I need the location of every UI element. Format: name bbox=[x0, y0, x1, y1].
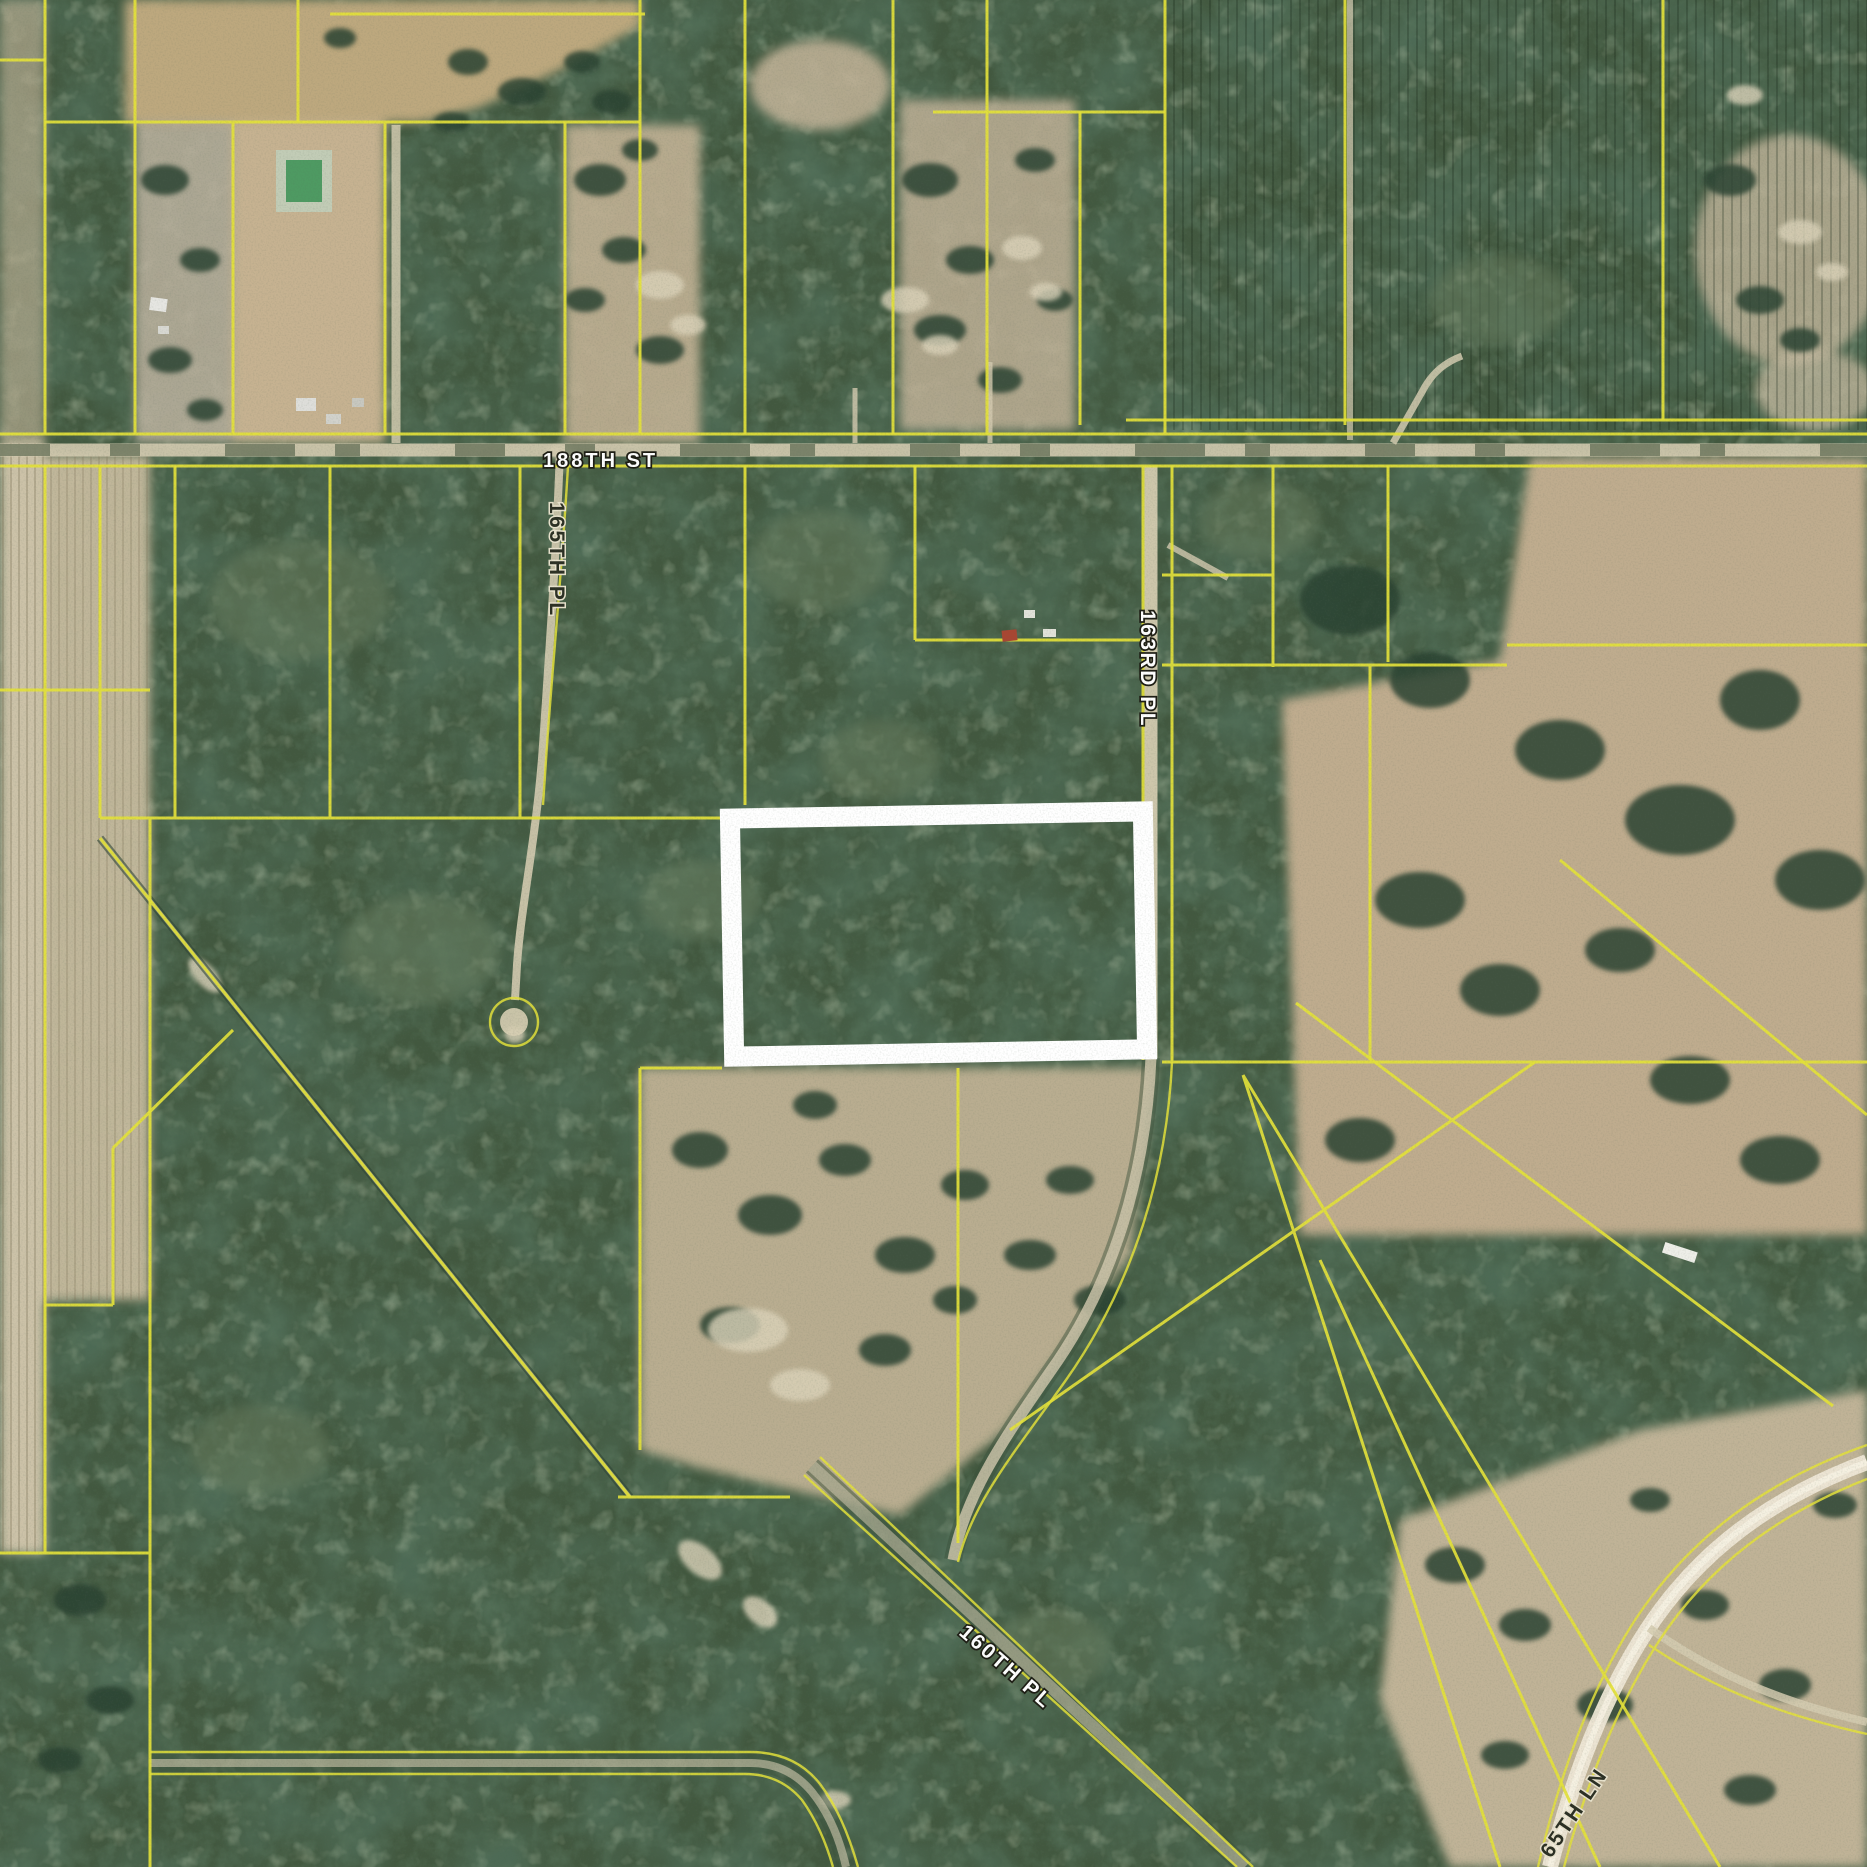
tree-clump bbox=[187, 399, 223, 421]
sand-patch bbox=[770, 1369, 830, 1401]
tree-clump bbox=[141, 165, 189, 195]
tree-clump bbox=[933, 1286, 977, 1314]
tree-clump bbox=[1460, 964, 1540, 1016]
road-label-188th-st: 188TH ST bbox=[543, 450, 658, 472]
building bbox=[352, 398, 364, 407]
tree-clump bbox=[941, 1170, 989, 1200]
road-label-165th-pl: 165TH PL bbox=[545, 502, 568, 618]
tree-clump bbox=[1775, 850, 1865, 910]
sand-patch bbox=[636, 271, 684, 299]
tree-clump bbox=[38, 1747, 82, 1773]
aerial-parcel-map[interactable]: 188TH ST 165TH PL 163RD PL 160TH PL 65TH… bbox=[0, 0, 1867, 1867]
tree-clump bbox=[1015, 148, 1055, 172]
tree-clump bbox=[738, 1195, 802, 1235]
light-patch bbox=[1200, 480, 1320, 560]
cul-de-sac bbox=[500, 1008, 528, 1036]
crop-rows-1 bbox=[0, 443, 45, 1553]
tree-clump bbox=[1046, 1166, 1094, 1194]
light-patch bbox=[640, 860, 760, 940]
tree-clump bbox=[54, 1584, 106, 1616]
tree-clump bbox=[793, 1091, 837, 1119]
pool bbox=[286, 160, 322, 202]
tree-clump bbox=[1300, 565, 1400, 635]
tree-clump bbox=[819, 1144, 871, 1176]
tree-clump bbox=[1515, 720, 1605, 780]
sand-patch bbox=[670, 315, 706, 335]
tree-clump bbox=[564, 51, 600, 73]
sand-patch bbox=[1002, 236, 1042, 260]
sand-patch bbox=[881, 287, 929, 313]
sand-patch bbox=[1030, 283, 1062, 301]
tree-clump bbox=[859, 1334, 911, 1366]
sand-patch bbox=[1778, 220, 1822, 244]
field-west-strip-top bbox=[0, 0, 45, 443]
tree-clump bbox=[1375, 872, 1465, 928]
tree-clump bbox=[1390, 652, 1470, 708]
building bbox=[1024, 610, 1035, 618]
tree-clump bbox=[86, 1686, 134, 1714]
tree-clump bbox=[1720, 670, 1800, 730]
building bbox=[158, 326, 169, 334]
tree-clump bbox=[1740, 1136, 1820, 1184]
pine-rows bbox=[1170, 0, 1867, 430]
tree-clump bbox=[1736, 286, 1784, 314]
tree-clump bbox=[1724, 1775, 1776, 1805]
field-clearing-1 bbox=[750, 40, 890, 130]
building bbox=[149, 297, 168, 312]
tree-clump bbox=[978, 367, 1022, 393]
road-label-163rd-pl: 163RD PL bbox=[1136, 610, 1159, 728]
sand-patch bbox=[1727, 85, 1763, 105]
tree-clump bbox=[180, 248, 220, 272]
sand-patch bbox=[1816, 263, 1848, 281]
sand-patch bbox=[708, 1308, 788, 1352]
tree-clump bbox=[1004, 1240, 1056, 1270]
building bbox=[326, 414, 341, 424]
building bbox=[1043, 629, 1056, 637]
tree-clump bbox=[1813, 1492, 1857, 1518]
tree-clump bbox=[902, 163, 958, 197]
tree-clump bbox=[324, 28, 356, 48]
tree-clump bbox=[448, 49, 488, 75]
light-patch bbox=[210, 540, 390, 660]
tree-clump bbox=[1325, 1118, 1395, 1162]
tree-clump bbox=[636, 336, 684, 364]
map-canvas[interactable]: 188TH ST 165TH PL 163RD PL 160TH PL 65TH… bbox=[0, 0, 1867, 1867]
light-patch bbox=[820, 720, 940, 800]
light-patch bbox=[340, 895, 500, 1005]
tree-clump bbox=[592, 90, 632, 114]
tree-clump bbox=[1681, 1590, 1729, 1620]
tree-clump bbox=[1630, 1488, 1670, 1512]
tree-clump bbox=[1780, 328, 1820, 352]
light-patch bbox=[190, 1405, 330, 1495]
tree-clump bbox=[1625, 785, 1735, 855]
tree-clump bbox=[672, 1132, 728, 1168]
light-patch bbox=[1430, 255, 1570, 345]
tree-clump bbox=[498, 78, 546, 106]
light-patch bbox=[750, 510, 890, 610]
tree-clump bbox=[1704, 164, 1756, 196]
tree-clump bbox=[1499, 1609, 1551, 1641]
tree-clump bbox=[1481, 1741, 1529, 1769]
building bbox=[296, 398, 316, 411]
sand-patch bbox=[922, 335, 958, 355]
tree-clump bbox=[574, 164, 626, 196]
tree-clump bbox=[148, 347, 192, 373]
tree-clump bbox=[1585, 928, 1655, 972]
red-roof-house bbox=[1002, 629, 1018, 642]
tree-clump bbox=[875, 1237, 935, 1273]
tree-clump bbox=[565, 288, 605, 312]
